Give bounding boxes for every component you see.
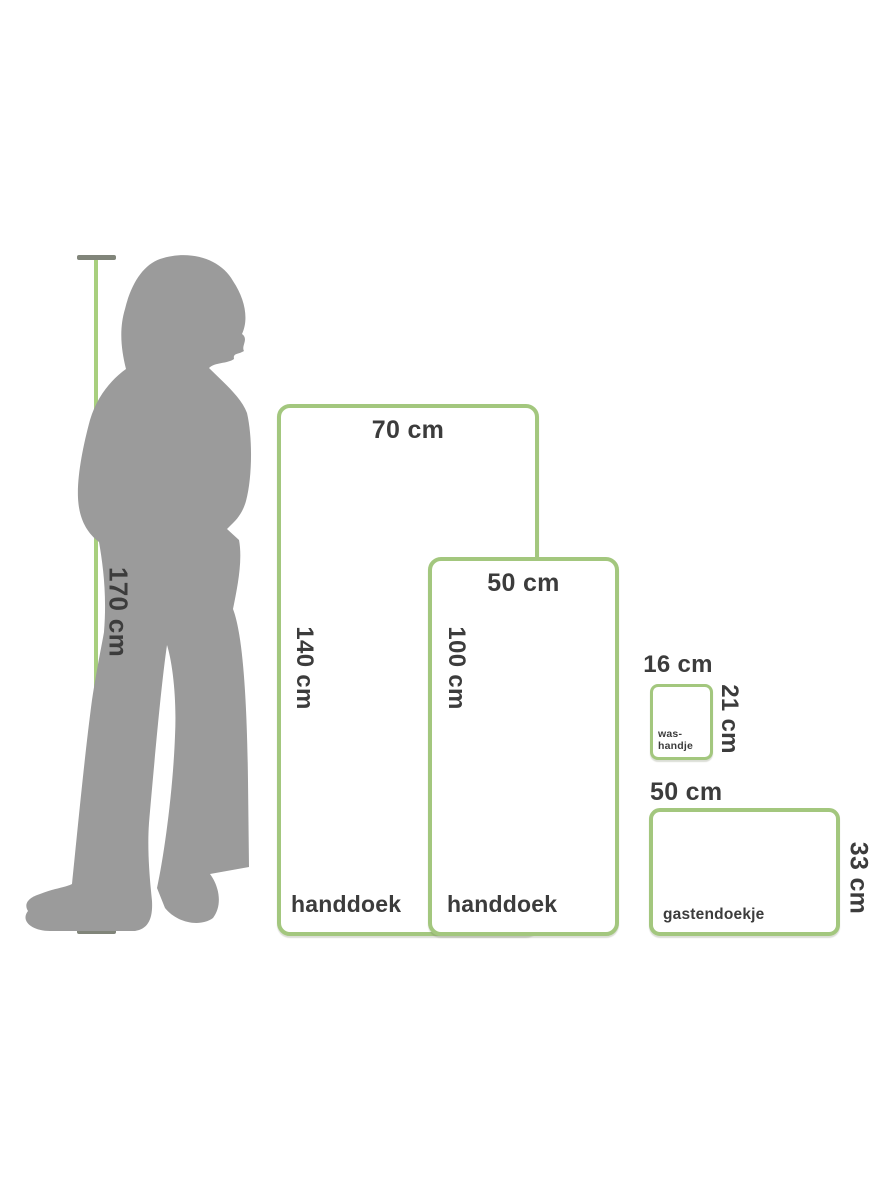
size-comparison-diagram: 170 cm 70 cm 140 cm handdoek 50 cm 100 c… (0, 0, 879, 1200)
towel-large-width-label: 70 cm (281, 416, 535, 445)
towel-medium-rect: 50 cm 100 cm handdoek (428, 557, 619, 936)
washcloth-width-label: 16 cm (643, 651, 713, 679)
towel-medium-height-label: 100 cm (442, 626, 470, 709)
towel-medium-width-label: 50 cm (432, 569, 615, 598)
washcloth-height-label: 21 cm (715, 684, 743, 754)
person-height-label: 170 cm (103, 567, 134, 657)
towel-medium-name: handdoek (447, 891, 557, 918)
washcloth-rect: was- handje (650, 684, 713, 760)
towel-large-name: handdoek (291, 891, 401, 918)
guest-towel-name: gastendoekje (663, 906, 764, 924)
guest-towel-rect: gastendoekje (649, 808, 840, 936)
washcloth-name: was- handje (658, 728, 693, 752)
guest-towel-width-label: 50 cm (650, 778, 722, 807)
guest-towel-height-label: 33 cm (844, 842, 873, 914)
towel-large-height-label: 140 cm (290, 626, 318, 709)
